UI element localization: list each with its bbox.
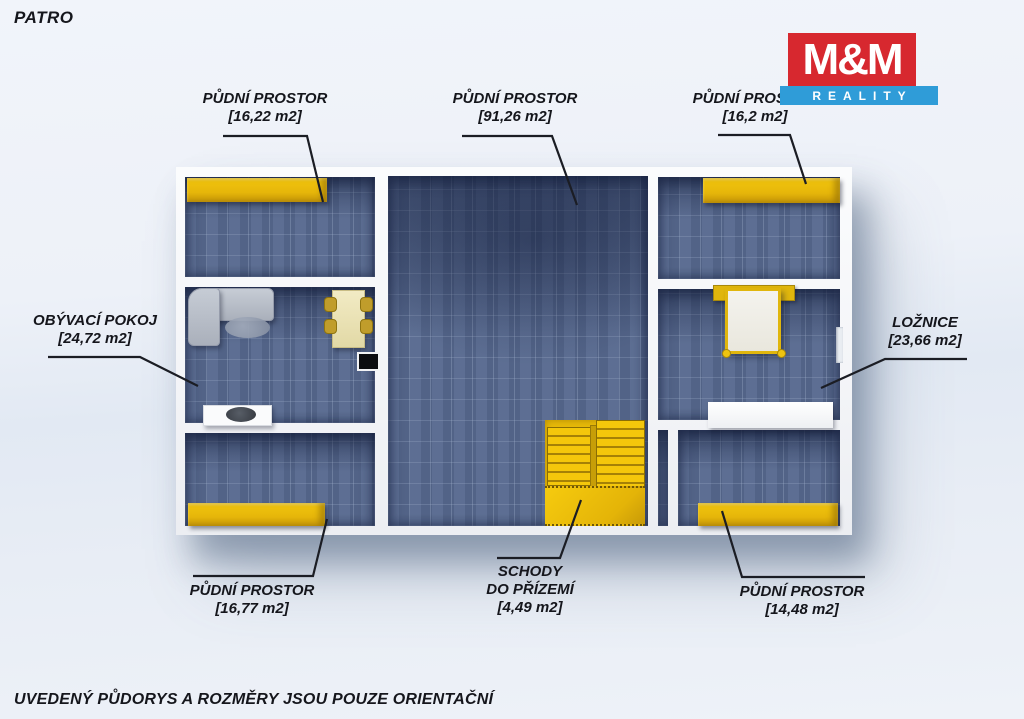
- label-bedroom: LOŽNICE [23,66 m2]: [888, 314, 961, 350]
- leader-living: [48, 357, 198, 386]
- leader-attic-bottom-left: [193, 519, 327, 576]
- label-attic-center: PŮDNÍ PROSTOR [91,26 m2]: [453, 90, 578, 126]
- floorplan-page: PATRO M&M REALITY: [0, 0, 1024, 719]
- room-area: [4,49 m2]: [486, 599, 574, 617]
- logo-mm-text: M&M: [802, 38, 901, 82]
- room-name: LOŽNICE: [888, 314, 961, 332]
- logo-reality-text: REALITY: [805, 90, 912, 102]
- room-area: [16,22 m2]: [203, 108, 328, 126]
- leader-stairs: [497, 500, 581, 558]
- logo-red-box: M&M: [788, 33, 916, 86]
- label-stairs: SCHODY DO PŘÍZEMÍ [4,49 m2]: [486, 563, 574, 617]
- leader-attic-top-right: [718, 135, 806, 184]
- room-area: [16,2 m2]: [693, 108, 818, 126]
- room-name-line2: DO PŘÍZEMÍ: [486, 581, 574, 599]
- leader-attic-bottom-right: [722, 511, 865, 577]
- room-area: [24,72 m2]: [33, 330, 157, 348]
- room-name: PŮDNÍ PROSTOR: [453, 90, 578, 108]
- label-living: OBÝVACÍ POKOJ [24,72 m2]: [33, 312, 157, 348]
- room-area: [16,77 m2]: [190, 600, 315, 618]
- room-name: PŮDNÍ PROSTOR: [203, 90, 328, 108]
- room-name: PŮDNÍ PROSTOR: [740, 583, 865, 601]
- room-name: OBÝVACÍ POKOJ: [33, 312, 157, 330]
- room-area: [23,66 m2]: [888, 332, 961, 350]
- room-name: PŮDNÍ PROSTOR: [190, 582, 315, 600]
- leader-attic-top-left: [223, 136, 323, 202]
- room-area: [91,26 m2]: [453, 108, 578, 126]
- leader-bedroom: [821, 359, 967, 388]
- label-attic-bottom-right: PŮDNÍ PROSTOR [14,48 m2]: [740, 583, 865, 619]
- room-name: SCHODY: [486, 563, 574, 581]
- label-attic-top-left: PŮDNÍ PROSTOR [16,22 m2]: [203, 90, 328, 126]
- label-attic-bottom-left: PŮDNÍ PROSTOR [16,77 m2]: [190, 582, 315, 618]
- room-area: [14,48 m2]: [740, 601, 865, 619]
- logo-blue-bar: REALITY: [780, 86, 938, 105]
- leader-attic-center: [462, 136, 577, 205]
